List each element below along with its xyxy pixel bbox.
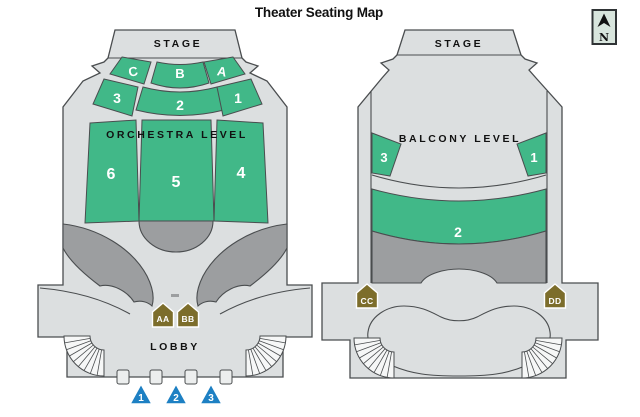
lobby-door-1 [117, 370, 129, 384]
marker-BB-label: BB [182, 314, 195, 324]
entrance-3-label: 3 [208, 393, 214, 404]
entrance-1-label: 1 [138, 393, 144, 404]
balcony-level-label: BALCONY LEVEL [399, 133, 521, 145]
north-compass: N [593, 10, 617, 44]
orchestra-stage-label: STAGE [154, 38, 202, 50]
orchestra-section-1-label: 1 [234, 90, 242, 106]
balcony-stage-label: STAGE [435, 38, 483, 50]
lobby-door-2 [150, 370, 162, 384]
entrance-2-label: 2 [173, 393, 179, 404]
balcony-section-3-label: 3 [380, 150, 387, 165]
theater-seating-map: Theater Seating Map [0, 0, 640, 417]
orchestra-wall-dash [171, 294, 179, 297]
compass-north-label: N [599, 31, 609, 44]
orchestra-section-4-label: 4 [237, 165, 246, 182]
balcony-plan: STAGE BALCONY LEVEL 3 1 2 CC DD [322, 30, 598, 378]
orchestra-section-3-label: 3 [113, 90, 121, 106]
balcony-section-1-label: 1 [530, 150, 537, 165]
orchestra-level-label: ORCHESTRA LEVEL [106, 129, 248, 141]
marker-CC-label: CC [361, 296, 374, 306]
marker-DD-label: DD [549, 296, 562, 306]
seating-map-svg: Theater Seating Map [0, 0, 640, 417]
lobby-door-4 [220, 370, 232, 384]
orchestra-section-6-label: 6 [107, 166, 116, 183]
orchestra-section-B-label: B [175, 66, 184, 81]
marker-AA-label: AA [157, 314, 170, 324]
lobby-label: LOBBY [150, 341, 200, 353]
page-title: Theater Seating Map [255, 5, 383, 20]
orchestra-section-5-label: 5 [172, 174, 181, 191]
balcony-section-2-label: 2 [454, 224, 462, 240]
orchestra-section-2-label: 2 [176, 97, 184, 113]
lobby-door-3 [185, 370, 197, 384]
orchestra-plan: STAGE C B A 3 2 1 ORCHESTRA LEVEL 6 5 4 … [38, 30, 312, 404]
